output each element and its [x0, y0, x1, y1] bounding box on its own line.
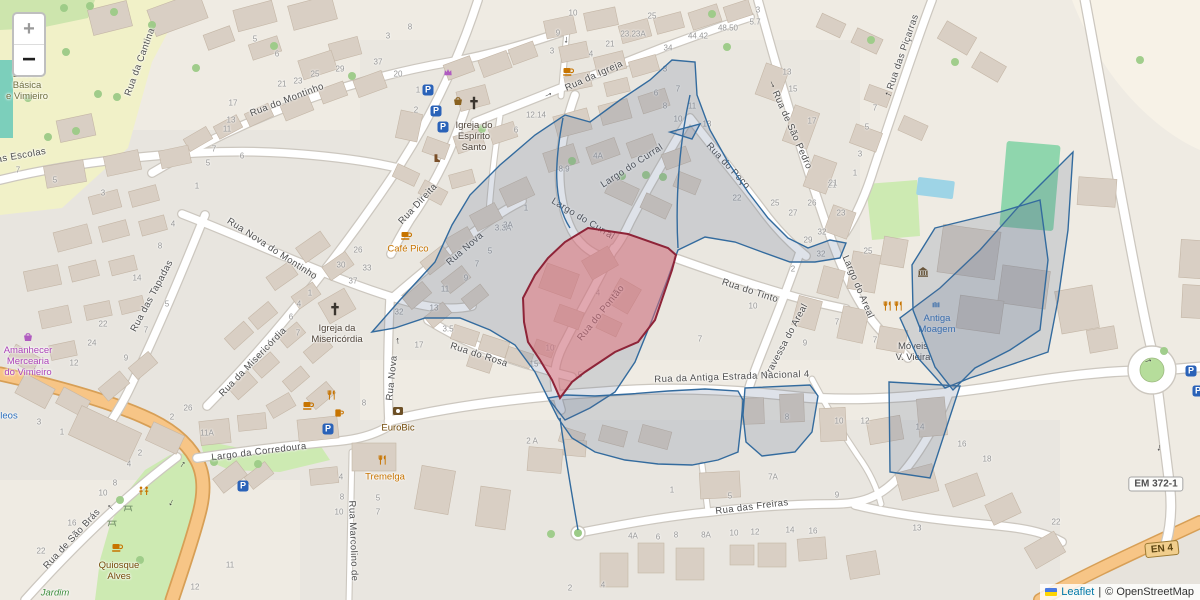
attribution-bar: Leaflet | © OpenStreetMap: [1040, 584, 1200, 600]
street-label: Largo do Areal: [840, 254, 876, 320]
house-number: 4A: [628, 532, 638, 541]
street-label: Rua das Escolas: [0, 146, 47, 170]
house-number: 11: [688, 102, 696, 111]
house-number: 10: [546, 344, 555, 353]
poi-label: QuiosqueAlves: [99, 560, 140, 582]
house-number: 10: [730, 529, 739, 538]
house-number: 13: [783, 68, 792, 77]
house-number: 4: [596, 289, 600, 298]
poi-label: EuroBic: [381, 422, 414, 433]
parking-icon: P: [423, 85, 434, 96]
oneway-arrow-icon: →: [1154, 442, 1167, 454]
house-number: 14: [786, 526, 795, 535]
house-number: 5: [206, 159, 210, 168]
street-label: Rua Nova: [444, 230, 486, 268]
street-label: Rua das Tapadas: [128, 258, 175, 334]
house-number: 1: [416, 86, 420, 95]
house-number: 23.23A: [620, 30, 645, 39]
house-number: 29: [336, 65, 345, 74]
house-number: 7: [296, 329, 300, 338]
house-number: 6: [514, 126, 518, 135]
house-number: 14: [133, 274, 142, 283]
house-number: 1: [60, 428, 64, 437]
house-number: 1: [524, 204, 528, 213]
street-label: Rua das Freiras: [715, 497, 789, 517]
street-label: Rua Direita: [396, 181, 439, 226]
house-number: 8: [408, 23, 412, 32]
house-number: 16: [68, 519, 77, 528]
house-number: 5: [488, 247, 492, 256]
oneway-arrow-icon: →: [1142, 353, 1155, 366]
house-number: 6: [654, 89, 658, 98]
house-number: 3: [858, 150, 862, 159]
poi-label: Jardim: [41, 587, 70, 598]
house-number: 5: [728, 492, 732, 501]
house-number: 4: [339, 473, 343, 482]
house-number: 8: [663, 102, 667, 111]
poi-label-line: Mercearia: [4, 356, 53, 367]
poi-label-line: Básica: [6, 80, 48, 91]
zoom-in-button[interactable]: +: [14, 14, 44, 44]
house-number: 13: [913, 524, 922, 533]
house-number: 10: [569, 9, 578, 18]
parking-icon: P: [431, 106, 442, 117]
house-number: 13: [227, 116, 236, 125]
parking-icon: P: [1193, 386, 1200, 397]
street-label: Rua Nova: [384, 355, 400, 401]
house-number: 8: [362, 399, 366, 408]
street-label: Largo da Corredoura: [211, 441, 307, 464]
house-number: 22: [99, 320, 108, 329]
house-number: 1: [853, 169, 857, 178]
map-labels-layer: Rua da CantinaRua das EscolasRua do Mont…: [0, 0, 1200, 600]
poi-label-line: Tremelga: [365, 471, 405, 482]
house-number: 7: [698, 335, 702, 344]
crown-icon: [442, 67, 454, 78]
street-label: Rua do Rosa: [449, 341, 509, 370]
house-number: 12: [751, 528, 760, 537]
house-number: 5: [253, 35, 257, 44]
street-label: Rua de São Pedro: [770, 89, 814, 171]
street-label: Rua da Cantina: [123, 26, 158, 97]
house-number: 9: [124, 354, 128, 363]
poi-label-line: V. Vieira: [896, 352, 931, 363]
restaurant-icon: [883, 301, 894, 312]
house-number: 17: [808, 117, 817, 126]
house-number: 6: [656, 533, 660, 542]
street-label: Rua de São Brás: [41, 507, 102, 572]
house-number: 25: [771, 199, 780, 208]
street-label: Rua do Pontão: [575, 283, 627, 343]
poi-label-line: Café Pico: [387, 243, 428, 254]
poi-label-line: e Vimieiro: [6, 92, 48, 103]
house-number: 2 A: [526, 437, 538, 446]
house-number: 32: [817, 250, 826, 259]
house-number: 44.42: [688, 32, 708, 41]
house-number: 18: [983, 455, 992, 464]
house-number: 7: [873, 104, 877, 113]
house-number: 8: [785, 413, 789, 422]
house-number: 8: [158, 242, 162, 251]
poi-label-line: Espírito: [456, 131, 493, 142]
church-icon: [328, 302, 343, 317]
playground-icon: [138, 485, 151, 497]
house-number: 23: [837, 209, 846, 218]
house-number: 5: [865, 123, 869, 132]
poi-label-line: Antiga: [919, 313, 956, 324]
oneway-arrow-icon: →: [175, 457, 190, 472]
house-number: 16: [958, 440, 967, 449]
bank-icon: [392, 405, 405, 417]
house-number: 12: [70, 359, 79, 368]
house-number: 3: [756, 6, 760, 15]
house-number: 10: [99, 489, 108, 498]
leaflet-link[interactable]: Leaflet: [1061, 586, 1094, 598]
street-label: Rua Nova do Montinho: [225, 216, 319, 283]
house-number: 15: [530, 360, 539, 369]
oneway-arrow-icon: →: [561, 35, 573, 46]
poi-label: Tremelga: [365, 471, 405, 482]
poi-label-line: Móveis: [896, 341, 931, 352]
house-number: 3: [663, 65, 667, 74]
house-number: 11: [441, 285, 449, 294]
house-number: 3.5: [442, 325, 453, 334]
house-number: 10: [335, 508, 344, 517]
house-number: 9: [556, 29, 560, 38]
cafe-icon: [562, 65, 574, 77]
house-number: 32: [395, 308, 404, 317]
house-number: 2: [568, 584, 572, 593]
house-number: 17: [415, 341, 424, 350]
house-number: 21: [606, 40, 615, 49]
poi-label-line: Alves: [99, 571, 140, 582]
house-number: 20: [394, 70, 403, 79]
shop-icon: [22, 331, 34, 343]
road-shield: EN 4: [1144, 540, 1180, 558]
street-label: Rua da Antiga Estrada Nacional 4: [654, 369, 810, 385]
street-label: Rua do Montinho: [248, 81, 325, 119]
house-number: 22: [1052, 518, 1061, 527]
poi-label-line: do Vimieiro: [4, 368, 53, 379]
restaurant-icon: [378, 455, 389, 466]
house-number: 5: [53, 176, 57, 185]
house-number: 11: [226, 561, 234, 570]
house-number: 2: [138, 449, 142, 458]
map-canvas[interactable]: Rua da CantinaRua das EscolasRua do Mont…: [0, 0, 1200, 600]
street-label: Rua do Poço: [704, 141, 753, 192]
house-number: 12: [861, 417, 870, 426]
museum-icon: [917, 266, 930, 278]
house-number: 9: [464, 274, 468, 283]
house-number: 21: [829, 179, 838, 188]
house-number: 8: [113, 479, 117, 488]
house-number: 25: [648, 12, 657, 21]
house-number: 13: [703, 120, 712, 129]
house-number: 6: [289, 313, 293, 322]
house-number: 7A: [768, 473, 778, 482]
house-number: 5.7: [749, 18, 760, 27]
house-number: 4: [297, 300, 301, 309]
house-number: 4A: [593, 152, 603, 161]
house-number: 2: [170, 413, 174, 422]
parking-icon: P: [438, 122, 449, 133]
cafe-icon: [111, 541, 123, 553]
osm-attribution-link[interactable]: © OpenStreetMap: [1105, 586, 1194, 598]
house-number: 10: [674, 115, 683, 124]
house-number: 29: [804, 236, 813, 245]
cafe-icon: [302, 399, 314, 411]
church-icon: [467, 96, 482, 111]
house-number: 3: [386, 32, 390, 41]
poi-label-line: Igreja do: [456, 120, 493, 131]
house-number: 7: [144, 326, 148, 335]
zoom-control: + −: [12, 12, 46, 77]
house-number: 21: [278, 80, 287, 89]
house-number: 27: [789, 209, 798, 218]
house-number: 8.9: [558, 165, 569, 174]
house-number: 7: [212, 145, 216, 154]
house-number: 6: [240, 152, 244, 161]
poi-label-line: Misericórdia: [311, 334, 362, 345]
house-number: 8A: [701, 531, 711, 540]
house-number: 4: [589, 50, 593, 59]
house-number: 1: [195, 182, 199, 191]
house-number: 37: [374, 58, 383, 67]
house-number: 1: [308, 289, 312, 298]
house-number: 5: [376, 494, 380, 503]
poi-label-line: Santo: [456, 143, 493, 154]
house-number: 6: [275, 50, 279, 59]
poi-label-line: Amanhecer: [4, 345, 53, 356]
picnic-icon: [106, 518, 119, 529]
house-number: 3A: [503, 221, 513, 230]
house-number: 7: [676, 85, 680, 94]
oneway-arrow-icon: →: [103, 501, 118, 516]
mill-icon: [931, 301, 941, 310]
house-number: 4: [127, 460, 131, 469]
house-number: 2: [414, 106, 418, 115]
house-number: 16: [809, 527, 818, 536]
house-number: 1: [670, 486, 674, 495]
poi-label: AntigaMoagem: [919, 313, 956, 335]
parking-icon: P: [238, 481, 249, 492]
house-number: 11: [223, 125, 231, 134]
poi-label-line: Jardim: [41, 587, 70, 598]
poi-label-line: leos: [0, 410, 17, 421]
house-number: 7: [873, 336, 877, 345]
house-number: 25: [311, 70, 320, 79]
poi-label: AmanhecerMerceariado Vimieiro: [4, 345, 53, 379]
house-number: 33: [363, 264, 372, 273]
poi-label-line: Igreja da: [311, 323, 362, 334]
ukraine-flag-icon: [1045, 588, 1057, 596]
house-number: 32: [818, 228, 827, 237]
house-number: 3: [37, 418, 41, 427]
street-label: Largo do Curral: [549, 196, 616, 243]
road-shield: EM 372-1: [1128, 477, 1183, 492]
house-number: 23: [294, 77, 303, 86]
house-number: 34: [664, 44, 673, 53]
house-number: 15: [789, 85, 798, 94]
house-number: 12.14: [526, 111, 546, 120]
oneway-arrow-icon: →: [165, 496, 179, 510]
poi-label: Igreja daMisericórdia: [311, 323, 362, 345]
boot-icon: [432, 153, 442, 163]
house-number: 7: [475, 260, 479, 269]
house-number: 4: [171, 220, 175, 229]
house-number: 11A: [200, 429, 214, 438]
parking-icon: P: [1186, 366, 1197, 377]
restaurant-icon: [327, 390, 338, 401]
house-number: 26: [184, 404, 193, 413]
house-number: 5: [578, 371, 582, 380]
house-number: 3: [550, 47, 554, 56]
oneway-arrow-icon: →: [541, 87, 555, 101]
house-number: 4: [601, 581, 605, 590]
poi-label: Café Pico: [387, 243, 428, 254]
street-label: Rua Marcolino de: [346, 500, 360, 581]
house-number: 9: [835, 491, 839, 500]
house-number: 17: [229, 99, 238, 108]
poi-label-line: Quiosque: [99, 560, 140, 571]
house-number: 3: [101, 189, 105, 198]
poi-label: MóveisV. Vieira: [896, 341, 931, 363]
house-number: 2: [791, 265, 795, 274]
poi-label: leos: [0, 410, 17, 421]
house-number: 37: [349, 277, 358, 286]
house-number: 7: [16, 166, 20, 175]
house-number: 14: [916, 423, 925, 432]
house-number: 7: [835, 318, 839, 327]
parking-icon: P: [323, 424, 334, 435]
house-number: 8: [674, 531, 678, 540]
house-number: 30: [337, 261, 346, 270]
house-number: 24: [88, 339, 97, 348]
street-label: Rua das Piçarras: [885, 13, 921, 92]
house-number: 25: [864, 247, 873, 256]
basket-icon: [452, 95, 464, 107]
house-number: 48.50: [718, 24, 738, 33]
house-number: 22: [733, 194, 742, 203]
house-number: 10: [835, 417, 844, 426]
house-number: 9: [803, 339, 807, 348]
house-number: 10: [749, 302, 758, 311]
house-number: 7: [376, 508, 380, 517]
house-number: 5: [165, 300, 169, 309]
cafe-icon: [400, 229, 412, 241]
house-number: 13: [430, 304, 439, 313]
poi-label: Igreja doEspíritoSanto: [456, 120, 493, 154]
bar-icon: [334, 408, 345, 419]
house-number: 8: [340, 493, 344, 502]
house-number: 26: [354, 246, 363, 255]
zoom-out-button[interactable]: −: [14, 44, 44, 75]
attribution-separator: |: [1098, 586, 1101, 598]
poi-label-line: Moagem: [919, 324, 956, 335]
restaurant-icon: [894, 301, 905, 312]
house-number: 22: [37, 547, 46, 556]
street-label: Largo do Curral: [599, 142, 665, 190]
picnic-icon: [122, 503, 135, 514]
oneway-arrow-icon: →: [391, 336, 403, 347]
street-label: Rua da Misericórdia: [217, 325, 289, 399]
poi-label-line: EuroBic: [381, 422, 414, 433]
house-number: 12: [191, 583, 200, 592]
house-number: 26: [808, 199, 817, 208]
